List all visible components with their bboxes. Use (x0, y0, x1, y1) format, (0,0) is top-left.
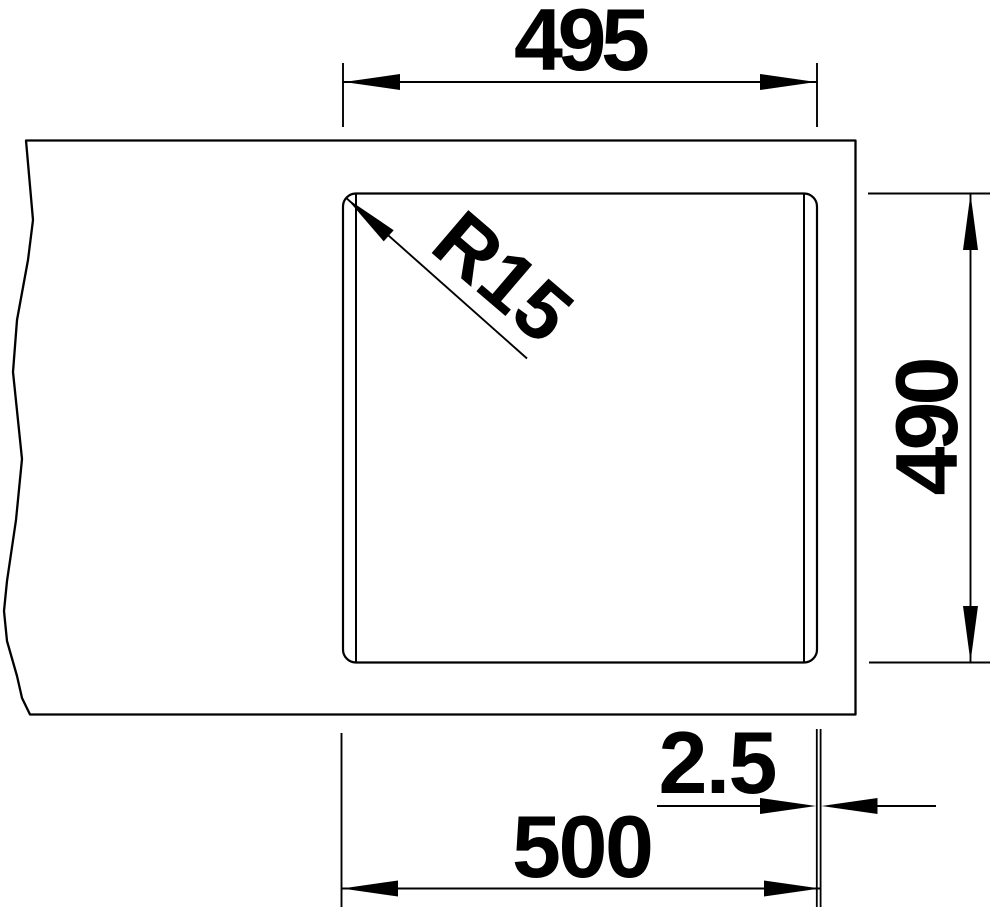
svg-text:490: 490 (877, 357, 976, 496)
svg-text:2.5: 2.5 (659, 713, 778, 812)
svg-text:495: 495 (514, 0, 650, 89)
svg-text:500: 500 (512, 797, 654, 896)
